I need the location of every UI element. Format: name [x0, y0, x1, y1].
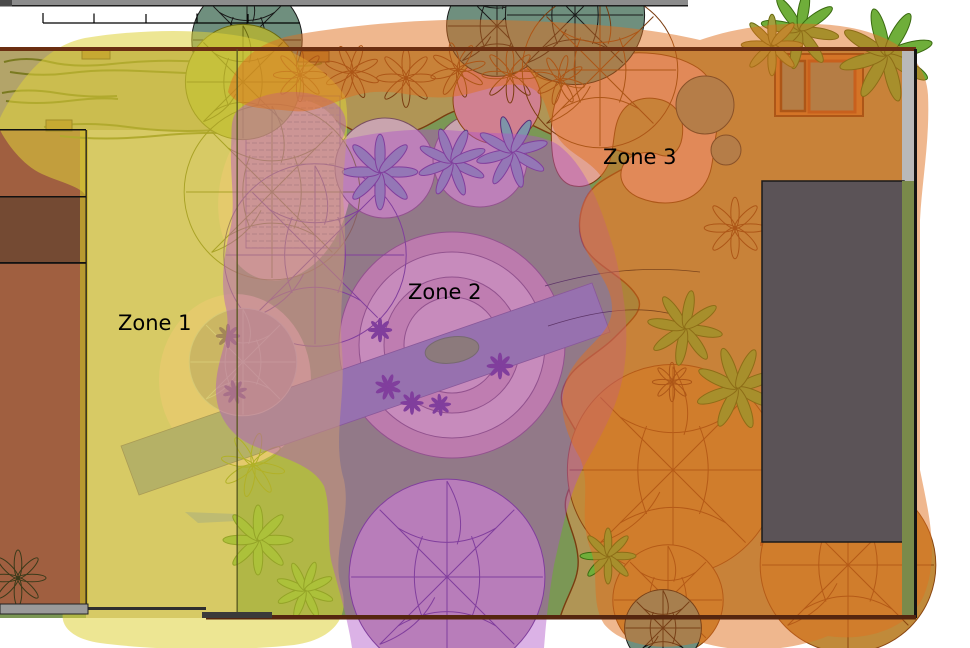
gravel-corner [902, 49, 916, 181]
shed[interactable] [762, 181, 904, 542]
side-border-strip [902, 181, 916, 618]
house-wall-line [86, 130, 87, 608]
zone-2-label: Zone 2 [408, 280, 482, 304]
top-bar-strip [0, 0, 688, 5]
top-bar-edge [0, 5, 688, 7]
dividing-fence[interactable] [237, 49, 238, 615]
garden-plan-window: Zone 1 Zone 2 Zone 3 [0, 0, 970, 648]
house-line [0, 262, 86, 264]
house-line [0, 196, 86, 198]
right-fence[interactable] [914, 49, 917, 618]
bottom-fence[interactable] [206, 615, 916, 620]
top-fence[interactable] [0, 47, 916, 51]
zone-1-label: Zone 1 [118, 311, 192, 335]
garden-plan-canvas[interactable]: Zone 1 Zone 2 Zone 3 [0, 0, 970, 648]
gate[interactable] [0, 604, 88, 614]
house-roof-dark [0, 196, 80, 263]
top-bar [0, 0, 688, 7]
zone-3-label: Zone 3 [603, 145, 677, 169]
house-line [0, 129, 86, 131]
threshold [202, 612, 272, 618]
top-bar-corner [0, 0, 12, 7]
